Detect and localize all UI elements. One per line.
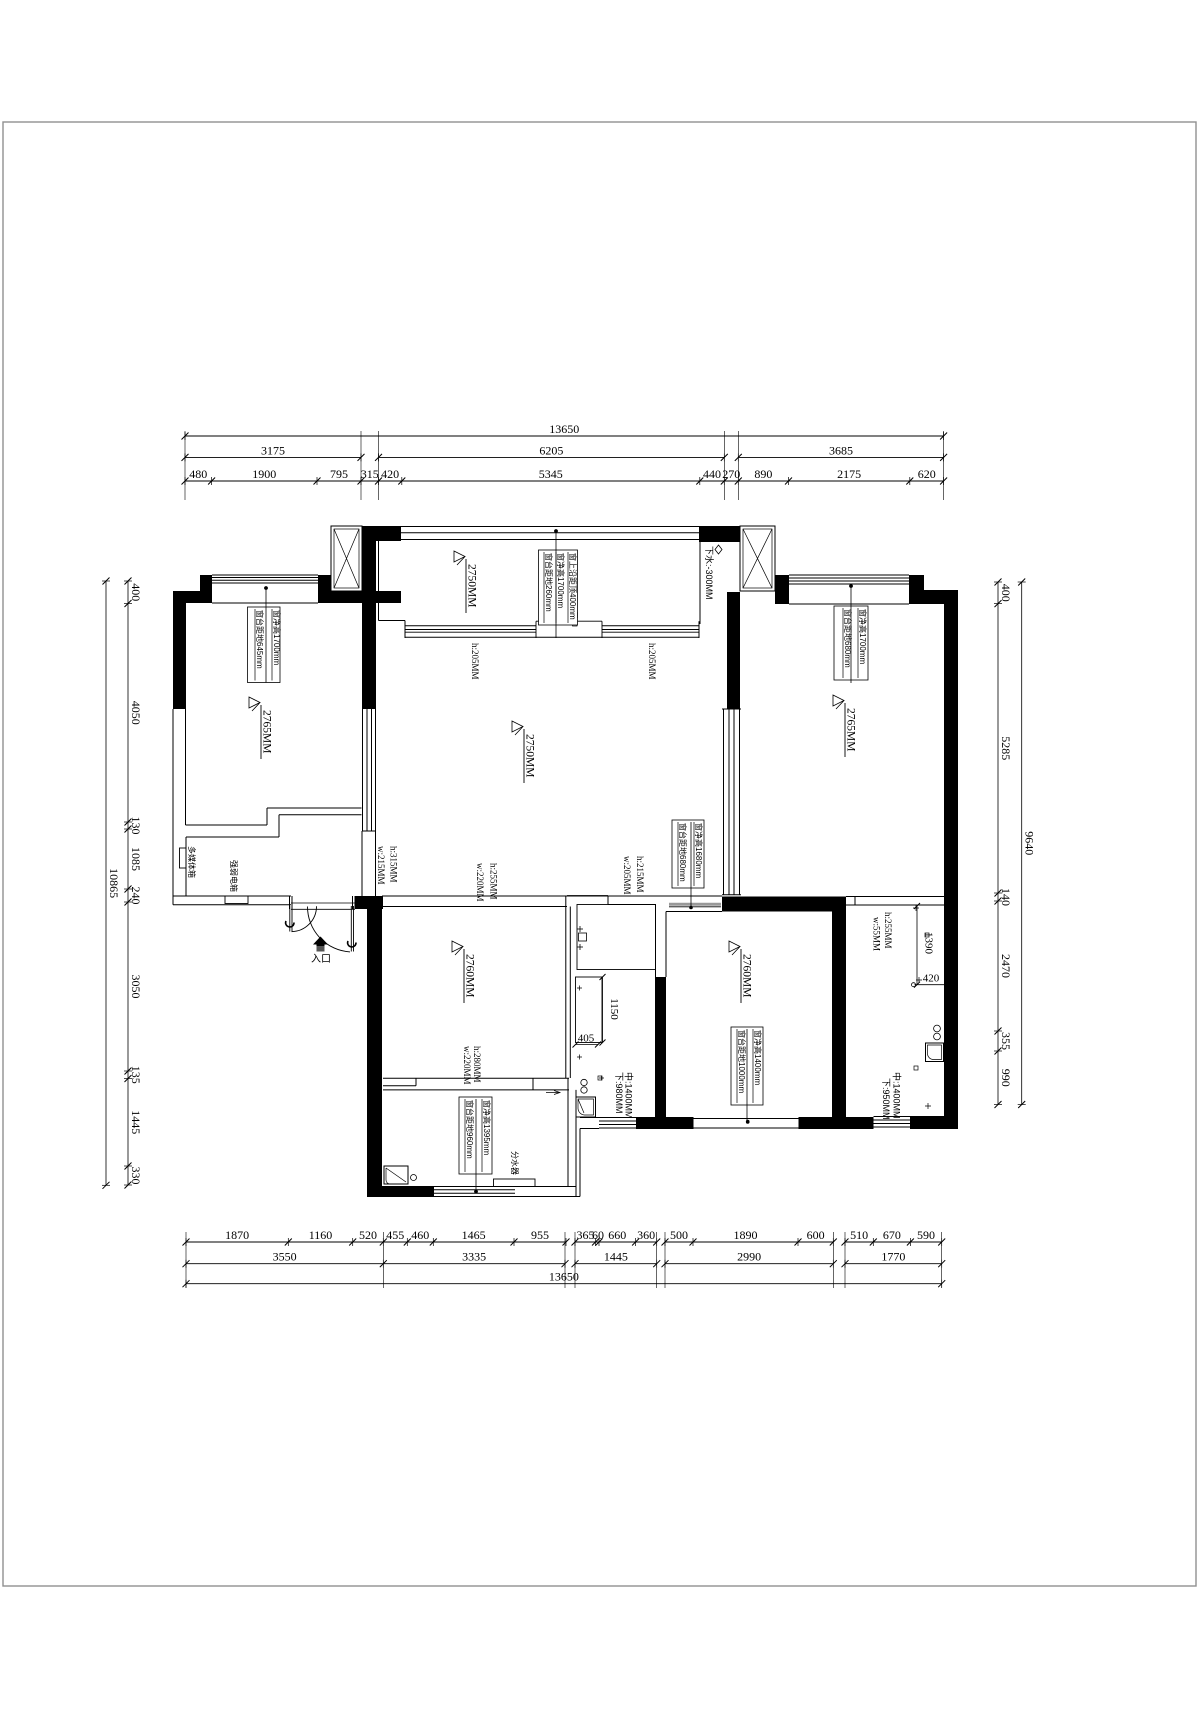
svg-text:h:255MM: h:255MM bbox=[489, 863, 499, 900]
svg-text:w:220MM: w:220MM bbox=[462, 1046, 472, 1085]
svg-text:240: 240 bbox=[129, 887, 143, 905]
svg-text:2470: 2470 bbox=[999, 954, 1013, 978]
svg-text:下:950MM: 下:950MM bbox=[881, 1078, 891, 1120]
svg-text:130: 130 bbox=[129, 817, 143, 835]
svg-text:795: 795 bbox=[330, 467, 348, 481]
svg-text:480: 480 bbox=[189, 467, 207, 481]
svg-text:h:315MM: h:315MM bbox=[389, 846, 399, 883]
svg-text:620: 620 bbox=[918, 467, 936, 481]
svg-text:500: 500 bbox=[670, 1228, 688, 1242]
svg-text:2760MM: 2760MM bbox=[741, 954, 753, 997]
svg-text:1160: 1160 bbox=[309, 1228, 333, 1242]
svg-text:5345: 5345 bbox=[539, 467, 563, 481]
svg-text:460: 460 bbox=[411, 1228, 429, 1242]
svg-text:2760MM: 2760MM bbox=[464, 954, 476, 997]
svg-text:955: 955 bbox=[531, 1228, 549, 1242]
svg-text:405: 405 bbox=[578, 1033, 595, 1045]
svg-text:窗台距地680mm: 窗台距地680mm bbox=[678, 823, 688, 882]
svg-text:455: 455 bbox=[386, 1228, 404, 1242]
svg-text:1890: 1890 bbox=[734, 1228, 758, 1242]
svg-text:1150: 1150 bbox=[608, 998, 620, 1020]
svg-text:下:980MM: 下:980MM bbox=[614, 1072, 624, 1114]
svg-text:窗台距地1000mm: 窗台距地1000mm bbox=[737, 1030, 747, 1093]
svg-text:窗上沿距顶400mm: 窗上沿距顶400mm bbox=[568, 553, 578, 620]
svg-text:420: 420 bbox=[381, 467, 399, 481]
svg-text:5285: 5285 bbox=[999, 736, 1013, 760]
svg-text:h:280MM: h:280MM bbox=[472, 1046, 482, 1083]
svg-text:990: 990 bbox=[999, 1069, 1013, 1087]
svg-text:1085: 1085 bbox=[129, 847, 143, 871]
svg-text:1445: 1445 bbox=[129, 1110, 143, 1134]
svg-text:355: 355 bbox=[999, 1032, 1013, 1050]
svg-text:窗台距地960mm: 窗台距地960mm bbox=[465, 1100, 475, 1159]
svg-text:w:215MM: w:215MM bbox=[376, 846, 386, 885]
svg-text:3335: 3335 bbox=[462, 1250, 486, 1264]
svg-text:10865: 10865 bbox=[107, 868, 121, 898]
svg-text:3550: 3550 bbox=[273, 1250, 297, 1264]
svg-text:窗净高1700mm: 窗净高1700mm bbox=[858, 609, 868, 664]
svg-text:400: 400 bbox=[999, 584, 1013, 602]
svg-text:2750MM: 2750MM bbox=[524, 734, 536, 777]
svg-text:1390: 1390 bbox=[923, 932, 935, 955]
svg-text:4050: 4050 bbox=[129, 701, 143, 725]
svg-text:1770: 1770 bbox=[881, 1250, 905, 1264]
svg-text:w:55MM: w:55MM bbox=[872, 917, 882, 951]
svg-text:400: 400 bbox=[129, 583, 143, 601]
svg-text:440: 440 bbox=[703, 467, 721, 481]
svg-text:窗净高1680mm: 窗净高1680mm bbox=[694, 823, 704, 878]
svg-text:315: 315 bbox=[361, 467, 379, 481]
svg-text:1445: 1445 bbox=[604, 1250, 628, 1264]
svg-text:多媒体箱: 多媒体箱 bbox=[187, 846, 197, 878]
svg-text:3685: 3685 bbox=[829, 443, 853, 457]
svg-text:强弱电箱: 强弱电箱 bbox=[229, 860, 239, 892]
svg-text:w:205MM: w:205MM bbox=[622, 856, 632, 895]
svg-text:中:1400MM: 中:1400MM bbox=[624, 1072, 635, 1119]
svg-text:分水器: 分水器 bbox=[510, 1151, 520, 1175]
svg-text:h:215MM: h:215MM bbox=[635, 856, 645, 893]
svg-text:600: 600 bbox=[807, 1228, 825, 1242]
svg-text:2175: 2175 bbox=[837, 467, 861, 481]
svg-text:中:1400MM: 中:1400MM bbox=[892, 1072, 903, 1119]
svg-text:2765MM: 2765MM bbox=[845, 708, 857, 751]
svg-text:3175: 3175 bbox=[261, 443, 285, 457]
svg-text:窗台距地645mm: 窗台距地645mm bbox=[255, 610, 265, 669]
svg-text:360: 360 bbox=[637, 1228, 655, 1242]
svg-text:h:205MM: h:205MM bbox=[647, 643, 657, 680]
svg-text:窗台距地260mm: 窗台距地260mm bbox=[544, 553, 554, 612]
svg-text:窗净高1400mm: 窗净高1400mm bbox=[753, 1030, 763, 1085]
svg-text:60: 60 bbox=[592, 1228, 604, 1242]
svg-text:1870: 1870 bbox=[225, 1228, 249, 1242]
svg-text:1465: 1465 bbox=[462, 1228, 486, 1242]
svg-text:670: 670 bbox=[883, 1228, 901, 1242]
svg-text:140: 140 bbox=[999, 888, 1013, 906]
svg-text:h:205MM: h:205MM bbox=[470, 643, 480, 680]
svg-text:270: 270 bbox=[722, 467, 740, 481]
svg-text:660: 660 bbox=[608, 1228, 626, 1242]
svg-text:890: 890 bbox=[754, 467, 772, 481]
svg-text:2750MM: 2750MM bbox=[466, 564, 478, 607]
svg-text:135: 135 bbox=[129, 1066, 143, 1084]
svg-text:13650: 13650 bbox=[549, 422, 579, 436]
svg-text:窗净高1700mm: 窗净高1700mm bbox=[272, 610, 282, 665]
svg-text:510: 510 bbox=[850, 1228, 868, 1242]
svg-text:窗净高1395mm: 窗净高1395mm bbox=[482, 1100, 492, 1155]
svg-text:420: 420 bbox=[923, 973, 940, 985]
svg-text:w:220MM: w:220MM bbox=[475, 863, 485, 902]
svg-text:窗台距地680mm: 窗台距地680mm bbox=[843, 609, 853, 668]
svg-text:520: 520 bbox=[359, 1228, 377, 1242]
svg-text:6205: 6205 bbox=[539, 443, 563, 457]
svg-text:入口: 入口 bbox=[311, 954, 331, 965]
svg-text:窗净高1700mm: 窗净高1700mm bbox=[556, 553, 566, 608]
svg-text:13650: 13650 bbox=[549, 1270, 579, 1284]
svg-text:3050: 3050 bbox=[129, 975, 143, 999]
svg-text:2765MM: 2765MM bbox=[261, 710, 273, 753]
svg-text:590: 590 bbox=[917, 1228, 935, 1242]
svg-text:330: 330 bbox=[129, 1167, 143, 1185]
svg-text:9640: 9640 bbox=[1023, 831, 1037, 855]
svg-text:2990: 2990 bbox=[737, 1250, 761, 1264]
svg-text:h:255MM: h:255MM bbox=[883, 912, 893, 949]
svg-text:下水:-300MM: 下水:-300MM bbox=[704, 546, 715, 600]
svg-text:1900: 1900 bbox=[252, 467, 276, 481]
